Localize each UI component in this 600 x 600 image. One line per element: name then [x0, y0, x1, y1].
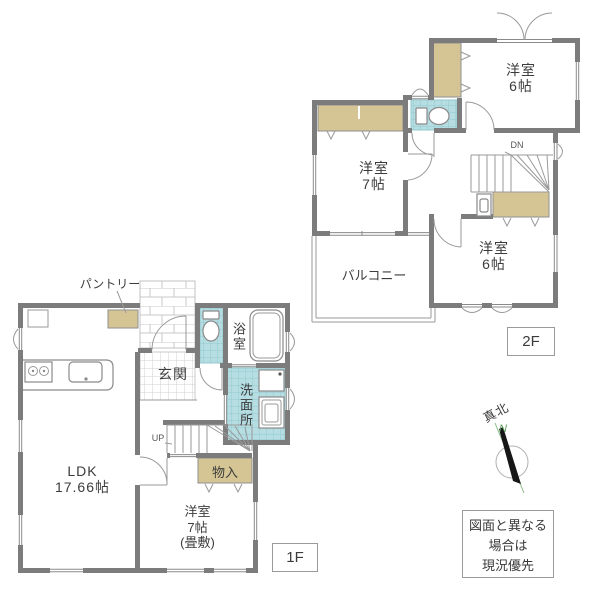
room-size: 6帖	[482, 256, 506, 272]
room-label-2f-top: 洋室 6帖	[479, 62, 563, 94]
entrance-porch	[140, 281, 195, 348]
stairs-up-label: UP	[147, 433, 169, 443]
stove-icon	[25, 362, 52, 382]
room-size: 7帖	[187, 520, 207, 535]
washroom-label: 洗面所	[236, 376, 255, 434]
room-name: 洋室	[184, 504, 210, 519]
storage-label: 物入	[200, 462, 250, 481]
tatami-room-label: 洋室 7帖 (畳敷)	[155, 504, 240, 551]
closet-2f-left-room	[318, 105, 403, 131]
room-name: 洋室	[479, 240, 509, 256]
pantry-label: パントリー	[70, 277, 150, 291]
kitchen-counter	[23, 310, 113, 390]
room-label-2f-bottom: 洋室 6帖	[452, 240, 536, 272]
basin-2f	[477, 194, 491, 216]
disclaimer-line: 現況優先	[463, 556, 553, 576]
disclaimer-line: 図面と異なる	[463, 516, 553, 536]
refrigerator-space	[28, 310, 48, 327]
floor2-tag: 2F	[507, 327, 555, 356]
closet-2f-bottom-room	[493, 192, 549, 217]
compass-north-letter: N	[499, 423, 507, 435]
kitchen-sink-icon	[69, 362, 102, 382]
pantry-cabinet	[108, 310, 138, 328]
toilet-1f-icon	[203, 311, 219, 341]
floor-plan-page: 洋室 6帖 洋室 7帖 洋室 6帖 バルコニー DN パントリー 玄関 浴室 洗…	[0, 0, 600, 600]
room-size: 6帖	[509, 78, 533, 94]
room-name: LDK	[67, 463, 97, 479]
room-name: 洋室	[506, 62, 536, 78]
closet-2f-top-room	[433, 43, 461, 97]
entrance-label: 玄関	[146, 366, 200, 382]
toilet-2f-icon	[416, 108, 449, 125]
stairs-2f	[471, 152, 553, 192]
bathtub-icon	[250, 310, 283, 361]
disclaimer-line: 場合は	[463, 536, 553, 556]
balcony-label: バルコニー	[324, 265, 424, 284]
stairs-dn-label: DN	[506, 140, 528, 150]
room-note: (畳敷)	[180, 535, 215, 550]
disclaimer-box: 図面と異なる 場合は 現況優先	[462, 510, 554, 578]
vanity-basin-icon	[259, 370, 284, 391]
ldk-label: LDK 17.66帖	[40, 463, 125, 495]
bathroom-label: 浴室	[229, 316, 248, 358]
room-size: 17.66帖	[55, 479, 110, 495]
room-label-2f-left: 洋室 7帖	[332, 160, 416, 192]
washing-machine-icon	[259, 397, 284, 428]
floor1-tag: 1F	[272, 543, 318, 572]
room-size: 7帖	[362, 176, 386, 192]
room-name: 洋室	[359, 160, 389, 176]
